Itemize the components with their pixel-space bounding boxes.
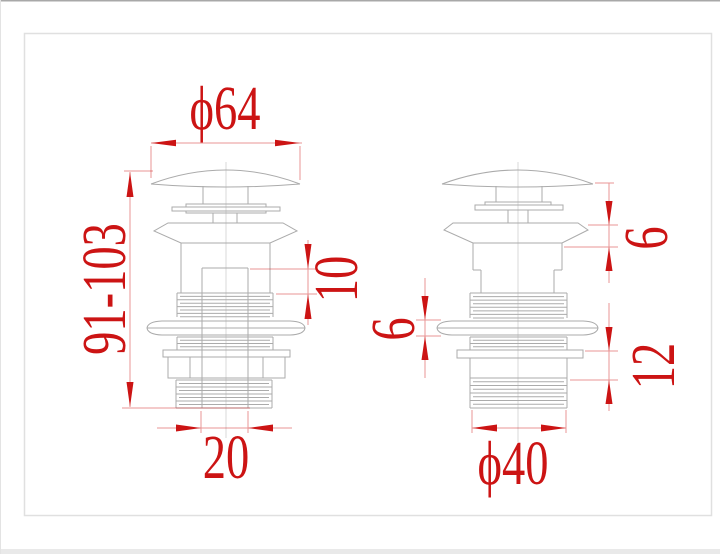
dimensions: ϕ64 91-103 10 20 6 xyxy=(69,73,687,497)
dim-inner-width-label: 20 xyxy=(203,422,249,491)
dim-locknut-height-label: 6 xyxy=(358,317,427,340)
arrow-down-icon xyxy=(422,296,429,320)
left-bottom-threads xyxy=(176,380,272,408)
right-thin-washer xyxy=(457,350,583,358)
dim-flange-height-label: 6 xyxy=(611,226,680,249)
page-bottom-border xyxy=(0,549,720,554)
drawing-page: ϕ64 91-103 10 20 6 xyxy=(0,0,720,554)
arrow-up-icon xyxy=(127,172,134,197)
arrow-right-icon xyxy=(176,425,201,432)
left-stem-lower xyxy=(213,213,237,223)
right-view xyxy=(437,162,598,442)
dim-step-height: 10 xyxy=(250,240,371,325)
dim-inner-width: 20 xyxy=(157,411,292,492)
left-mid-threads xyxy=(177,337,273,350)
right-top-flange xyxy=(444,223,588,243)
right-stem xyxy=(496,186,542,202)
page-left-border xyxy=(0,0,1,554)
dim-locknut-height: 6 xyxy=(358,278,441,378)
dim-thread-diameter: ϕ40 xyxy=(472,410,566,498)
dim-overall-height-label: 91-103 xyxy=(69,223,138,355)
left-view xyxy=(147,162,305,438)
arrow-down-icon xyxy=(606,327,613,351)
page-top-border xyxy=(0,0,720,2)
left-upper-threads xyxy=(177,293,273,317)
right-seal-washer xyxy=(475,202,563,210)
dim-thread-diameter-label: ϕ40 xyxy=(478,428,549,497)
arrow-up-icon xyxy=(606,380,613,404)
technical-drawing: ϕ64 91-103 10 20 6 xyxy=(0,0,720,554)
arrow-left-icon xyxy=(151,140,176,147)
arrow-down-icon xyxy=(606,201,613,225)
arrow-left-icon xyxy=(248,425,273,432)
dim-step-height-label: 10 xyxy=(301,256,370,302)
arrow-up-icon xyxy=(606,247,613,271)
dim-washer-to-thread: 12 xyxy=(570,303,688,411)
arrow-down-icon xyxy=(127,382,134,407)
arrow-right-icon xyxy=(275,140,300,147)
dim-washer-to-thread-label: 12 xyxy=(618,343,687,389)
dim-cap-diameter-label: ϕ64 xyxy=(190,73,261,142)
